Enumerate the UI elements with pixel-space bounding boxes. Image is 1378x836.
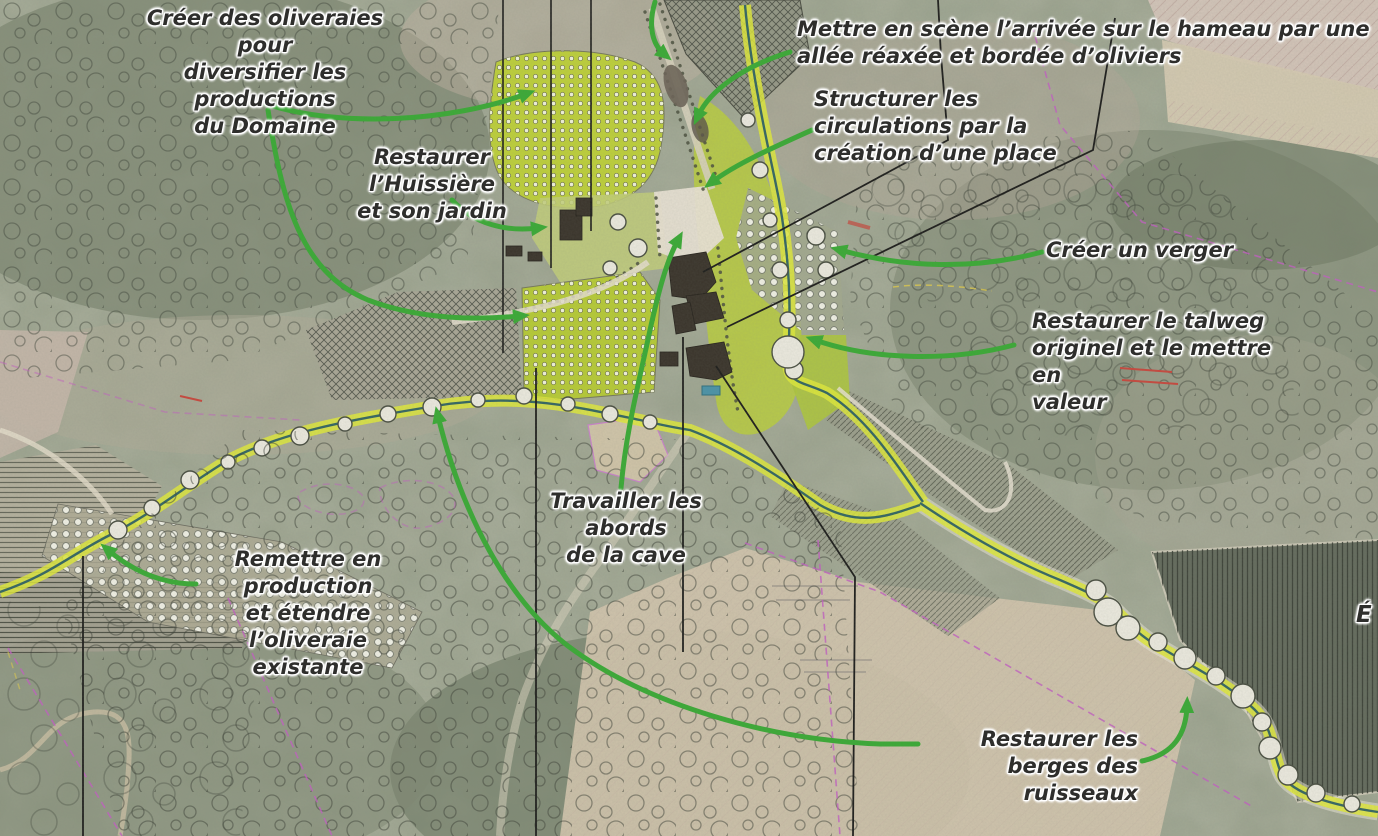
annotation-berges: Restaurer les berges des ruisseaux	[902, 726, 1138, 807]
annotation-edge-partial: É	[1356, 602, 1378, 629]
annotation-place: Structurer les circulations par la créat…	[814, 86, 1064, 167]
annotation-hameau: Mettre en scène l’arrivée sur le hameau …	[797, 16, 1378, 70]
annotation-verger: Créer un verger	[1046, 237, 1266, 264]
annotation-oliveraie-existante: Remettre en production et étendre l’oliv…	[186, 546, 430, 681]
annotation-cave: Travailler les abords de la cave	[516, 488, 736, 569]
annotation-huissiere: Restaurer l’Huissière et son jardin	[318, 144, 546, 225]
annotation-talweg: Restaurer le talweg originel et le mettr…	[1032, 308, 1282, 416]
annotation-oliveraies: Créer des oliveraies pour diversifier le…	[122, 5, 408, 140]
masterplan-map: Créer des oliveraies pour diversifier le…	[0, 0, 1378, 836]
